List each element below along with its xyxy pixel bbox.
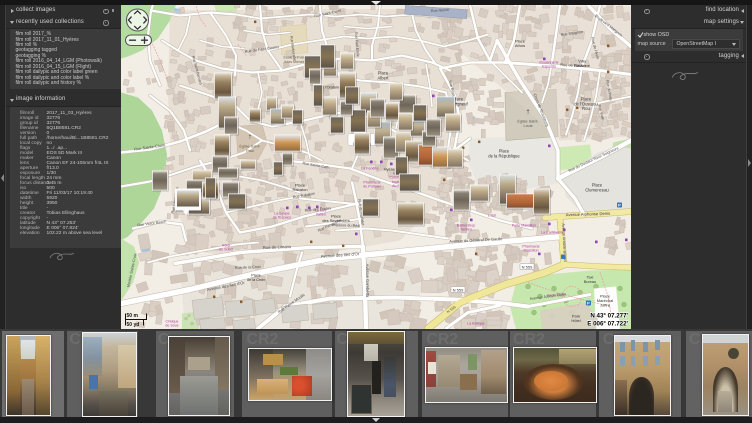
svg-text:Rabaton: Rabaton [292, 187, 307, 192]
svg-text:P: P [587, 300, 590, 305]
svg-text:P: P [618, 202, 621, 207]
svg-text:du Portalet: du Portalet [363, 184, 380, 188]
svg-text:Athos: Athos [515, 43, 525, 48]
svg-text:de la Croix: de la Croix [247, 277, 265, 281]
svg-text:La Cadiavella: La Cadiavella [541, 230, 563, 234]
svg-text:Albert: Albert [378, 75, 390, 80]
svg-text:L'Issi: L'Issi [488, 213, 496, 217]
svg-text:N 559: N 559 [453, 287, 464, 292]
svg-text:du Soleil: du Soleil [219, 247, 233, 251]
svg-text:Clemenceau: Clemenceau [585, 187, 609, 192]
svg-text:Taxi: Taxi [587, 275, 594, 279]
svg-text:La Banque: La Banque [467, 321, 484, 325]
svg-text:Massillon: Massillon [524, 248, 539, 252]
svg-text:Rou: Rou [582, 106, 590, 111]
svg-text:Avenue Gambetta: Avenue Gambetta [365, 263, 370, 297]
svg-text:Paul: Paul [246, 149, 254, 153]
svg-text:La Fenêtre: La Fenêtre [361, 166, 378, 170]
svg-text:Esposito: Esposito [542, 64, 556, 68]
svg-text:Bureau: Bureau [584, 279, 596, 283]
svg-text:N 43° 07.277': N 43° 07.277' [590, 312, 628, 319]
svg-text:de la République: de la République [488, 153, 520, 158]
svg-text:Jules Michelet: Jules Michelet [284, 60, 307, 64]
svg-text:Hôtel: Hôtel [571, 318, 580, 323]
svg-text:de l'Espace: de l'Espace [273, 215, 291, 219]
svg-text:des Sevenniers: des Sevenniers [322, 218, 350, 223]
svg-text:50 m: 50 m [127, 313, 139, 319]
svg-text:Rue de Limans: Rue de Limans [263, 244, 291, 250]
svg-text:italien: italien [316, 212, 325, 216]
svg-text:Église Saint-: Église Saint- [517, 118, 539, 123]
svg-text:Place: Place [251, 273, 261, 277]
svg-text:50 yd: 50 yd [127, 322, 140, 328]
svg-text:École primaire: École primaire [284, 54, 307, 59]
svg-text:de Sous: de Sous [165, 323, 178, 327]
svg-text:N 559: N 559 [522, 264, 533, 269]
svg-text:Joffre: Joffre [600, 302, 611, 307]
svg-text:†: † [526, 109, 529, 115]
svg-text:E 006° 07.722': E 006° 07.722' [587, 320, 628, 327]
svg-text:Église Saint-: Église Saint- [239, 143, 261, 148]
svg-text:Ratalone: Ratalone [574, 63, 591, 68]
svg-text:Louis: Louis [523, 124, 532, 128]
svg-text:†: † [249, 134, 252, 140]
svg-text:Tantien: Tantien [460, 227, 472, 231]
svg-text:Ancre Doré: Ancre Doré [547, 293, 565, 297]
svg-text:Porte Massillon: Porte Massillon [512, 223, 537, 227]
